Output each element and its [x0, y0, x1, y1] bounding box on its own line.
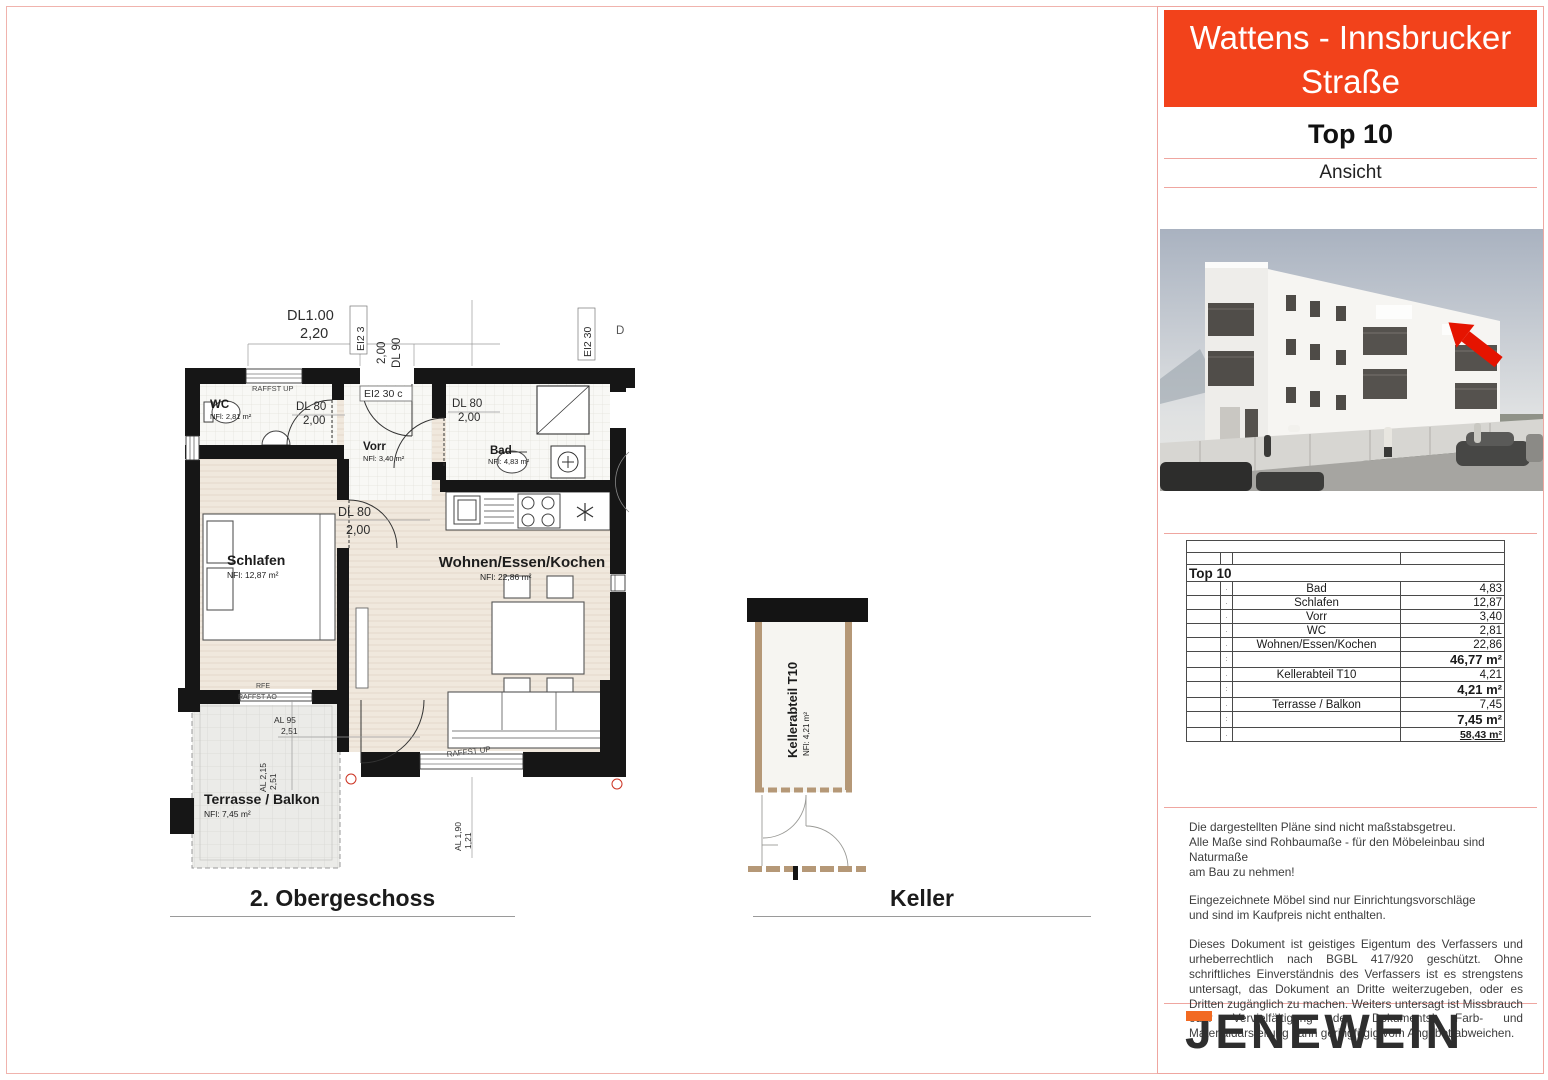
- registration-mark: [612, 779, 622, 789]
- project-title: Wattens - Innsbrucker Straße: [1164, 10, 1537, 107]
- svg-text:D: D: [616, 325, 624, 337]
- table-title-row: Top 10: [1187, 565, 1505, 582]
- svg-text:NFl: 2,81 m²: NFl: 2,81 m²: [210, 412, 252, 421]
- svg-text:DL 80: DL 80: [338, 505, 371, 519]
- svg-text:2,20: 2,20: [300, 326, 328, 342]
- registration-mark: [346, 774, 356, 784]
- floorplan-caption: 2. Obergeschoss: [170, 885, 515, 912]
- table-row: .Vorr3,40: [1187, 610, 1505, 624]
- svg-text:NFl: 3,40 m²: NFl: 3,40 m²: [363, 454, 405, 463]
- building-parapet: [1376, 305, 1412, 319]
- svg-text:AL 95: AL 95: [274, 715, 296, 725]
- area-table: Top 10 .Bad4,83 .Schlafen12,87 .Vorr3,40…: [1186, 540, 1505, 742]
- photo-car-right: [1456, 432, 1543, 466]
- sideboard: [356, 608, 368, 688]
- view-label: Ansicht: [1164, 159, 1537, 188]
- building-roof-edge: [1205, 262, 1268, 268]
- svg-text:2,00: 2,00: [376, 342, 388, 364]
- logo-j-bar: [1186, 1011, 1212, 1021]
- unit-label: Top 10: [1164, 107, 1537, 159]
- keller-caption-line: [753, 916, 1091, 917]
- table-subtotal-row: :4,21 m²: [1187, 682, 1505, 698]
- svg-text:NFl: 22,86 m²: NFl: 22,86 m²: [480, 572, 532, 582]
- floorplan-canvas: DL1.00 2,20 EI2 3 2,00 DL 90 EI2 30 D EI…: [0, 0, 1160, 1080]
- spacer: [1164, 491, 1537, 534]
- svg-text:2,00: 2,00: [303, 415, 325, 427]
- table-row: .Kellerabteil T104,21: [1187, 668, 1505, 682]
- svg-text:DL1.00: DL1.00: [287, 308, 334, 324]
- svg-text:DL 80: DL 80: [296, 401, 326, 413]
- floorplan-caption-line: [170, 916, 515, 917]
- table-row: .Wohnen/Essen/Kochen22,86: [1187, 638, 1505, 652]
- table-row: .Schlafen12,87: [1187, 596, 1505, 610]
- title-block: Wattens - Innsbrucker Straße Top 10 Ansi…: [1157, 6, 1544, 1074]
- svg-text:DL 90: DL 90: [391, 338, 403, 368]
- table-row: .Terrasse / Balkon7,45: [1187, 698, 1505, 712]
- svg-text:EI2 3: EI2 3: [355, 326, 367, 351]
- washing-machine: [551, 446, 585, 478]
- svg-text:EI2 30: EI2 30: [582, 326, 594, 357]
- building-photo: [1160, 229, 1543, 491]
- logo-text: JENEWEIN: [1185, 1006, 1464, 1059]
- disclaimer-paragraph: Die dargestellten Pläne sind nicht maßst…: [1189, 820, 1523, 879]
- svg-text:NFl: 4,83 m²: NFl: 4,83 m²: [488, 457, 530, 466]
- svg-text:Terrasse / Balkon: Terrasse / Balkon: [204, 791, 320, 807]
- svg-text:RAFFST UP: RAFFST UP: [252, 384, 294, 393]
- keller-plan: Kellerabteil T10 NFl: 4,21 m²: [747, 598, 868, 880]
- table-row: [1187, 541, 1505, 553]
- plan-sheet: DL1.00 2,20 EI2 3 2,00 DL 90 EI2 30 D EI…: [0, 0, 1548, 1080]
- svg-text:NFl: 4,21 m²: NFl: 4,21 m²: [802, 712, 811, 756]
- sofa: [448, 692, 610, 748]
- svg-text:EI2 30 c: EI2 30 c: [364, 388, 403, 400]
- spacer: [1164, 188, 1537, 229]
- table-subtotal-row: :7,45 m²: [1187, 712, 1505, 728]
- svg-text:DL 80: DL 80: [452, 398, 482, 410]
- svg-text:RFE: RFE: [256, 683, 270, 690]
- keller-caption: Keller: [753, 885, 1091, 912]
- svg-text:NFl: 12,87 m²: NFl: 12,87 m²: [227, 570, 279, 580]
- table-subtotal-row: :46,77 m²: [1187, 652, 1505, 668]
- table-total-row: .58,43 m²: [1187, 728, 1505, 742]
- svg-text:2,00: 2,00: [458, 412, 480, 424]
- table-row: [1187, 553, 1505, 565]
- svg-text:Schlafen: Schlafen: [227, 552, 285, 568]
- table-row: .WC2,81: [1187, 624, 1505, 638]
- logo-wordmark: JENEWEIN: [1185, 1005, 1464, 1060]
- shower: [537, 386, 589, 434]
- svg-text:Wohnen/Essen/Kochen: Wohnen/Essen/Kochen: [439, 554, 605, 571]
- disclaimer-paragraph: Eingezeichnete Möbel sind nur Einrichtun…: [1189, 893, 1523, 923]
- company-logo: JENEWEIN: [1185, 1005, 1515, 1065]
- svg-text:2,51: 2,51: [268, 773, 278, 790]
- svg-text:AL 1,90: AL 1,90: [453, 822, 463, 851]
- svg-text:AL 2,15: AL 2,15: [258, 763, 268, 792]
- svg-text:NFl: 7,45 m²: NFl: 7,45 m²: [204, 809, 251, 819]
- disclaimer-notes: Die dargestellten Pläne sind nicht maßst…: [1164, 807, 1537, 1004]
- svg-text:1,21: 1,21: [463, 832, 473, 849]
- svg-text:RAFFST AO: RAFFST AO: [238, 694, 277, 701]
- svg-text:Kellerabteil T10: Kellerabteil T10: [785, 662, 800, 758]
- svg-text:2,51: 2,51: [281, 726, 298, 736]
- table-row: .Bad4,83: [1187, 582, 1505, 596]
- svg-text:WC: WC: [210, 399, 229, 411]
- svg-text:2,00: 2,00: [346, 523, 370, 537]
- svg-text:Vorr: Vorr: [363, 441, 386, 453]
- svg-text:Bad: Bad: [490, 445, 512, 457]
